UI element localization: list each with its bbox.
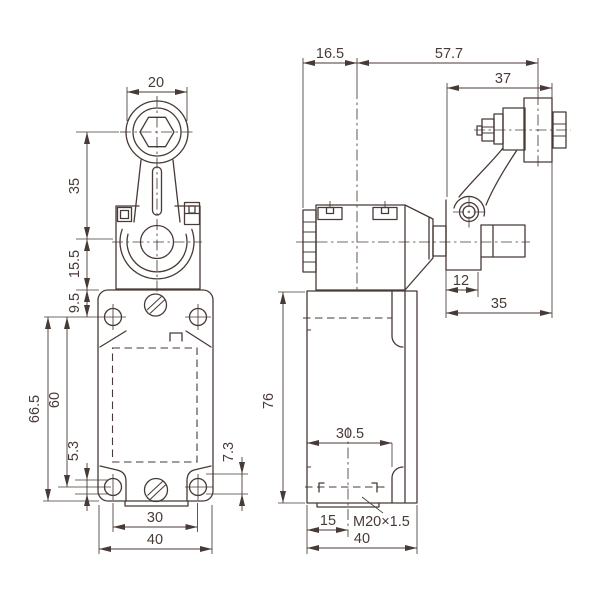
dimensions-side: 16.5 57.7 37 12 35 76 30.5 15 40 M20×1.5 [261, 46, 552, 554]
head-side-clamp [303, 210, 316, 272]
dim-body-depth: 40 [354, 531, 370, 547]
dim-bracket-width: 12 [453, 273, 469, 289]
dim-lever-arm: 35 [491, 296, 507, 312]
axle-bolt-tip [477, 126, 482, 135]
hidden-recess [113, 348, 198, 462]
cover-screw-bottom [145, 479, 168, 502]
dim-center-to-roller: 57.7 [435, 46, 463, 62]
dim-lever-length: 35 [67, 178, 83, 194]
stop-block [481, 225, 525, 257]
dim-hole-pitch-horizontal: 30 [147, 510, 163, 526]
head-side [316, 205, 405, 290]
dim-conduit-depth: 30.5 [336, 426, 364, 442]
dim-pivot-offset: 15.5 [67, 250, 83, 278]
cover-screw-top [145, 294, 167, 316]
dim-slot-right: 7.3 [221, 442, 237, 462]
label-conduit-thread: M20×1.5 [353, 514, 410, 530]
lever-arm-side [459, 148, 503, 197]
dim-top-hole-offset: 9.5 [67, 293, 83, 313]
head-cone [405, 205, 433, 290]
front-view [98, 96, 213, 506]
plunger-neck [433, 226, 446, 256]
limit-switch-drawing: 20 35 15.5 9.5 66.5 60 5.3 7.3 30 40 16.… [0, 0, 600, 600]
switch-body-side [307, 291, 417, 503]
head-left-clamp [118, 208, 132, 222]
dim-lever-span: 37 [495, 71, 511, 87]
dim-body-height: 76 [261, 393, 277, 409]
side-view [296, 88, 571, 537]
lever-arm [134, 160, 141, 222]
technical-drawing-canvas: 20 35 15.5 9.5 66.5 60 5.3 7.3 30 40 16.… [0, 0, 600, 600]
dim-slot-left: 5.3 [66, 441, 82, 461]
axle-washer [494, 114, 503, 144]
roller-bracket [503, 108, 525, 150]
cover-detail [170, 333, 182, 341]
dim-head-center-offset: 16.5 [316, 46, 344, 62]
dim-hole-pitch-vertical: 60 [47, 392, 63, 408]
dim-body-width: 40 [147, 532, 163, 548]
dim-roller-width: 20 [148, 75, 164, 91]
dim-conduit-center: 15 [320, 513, 336, 529]
dim-hole-to-bottom: 66.5 [27, 395, 43, 423]
